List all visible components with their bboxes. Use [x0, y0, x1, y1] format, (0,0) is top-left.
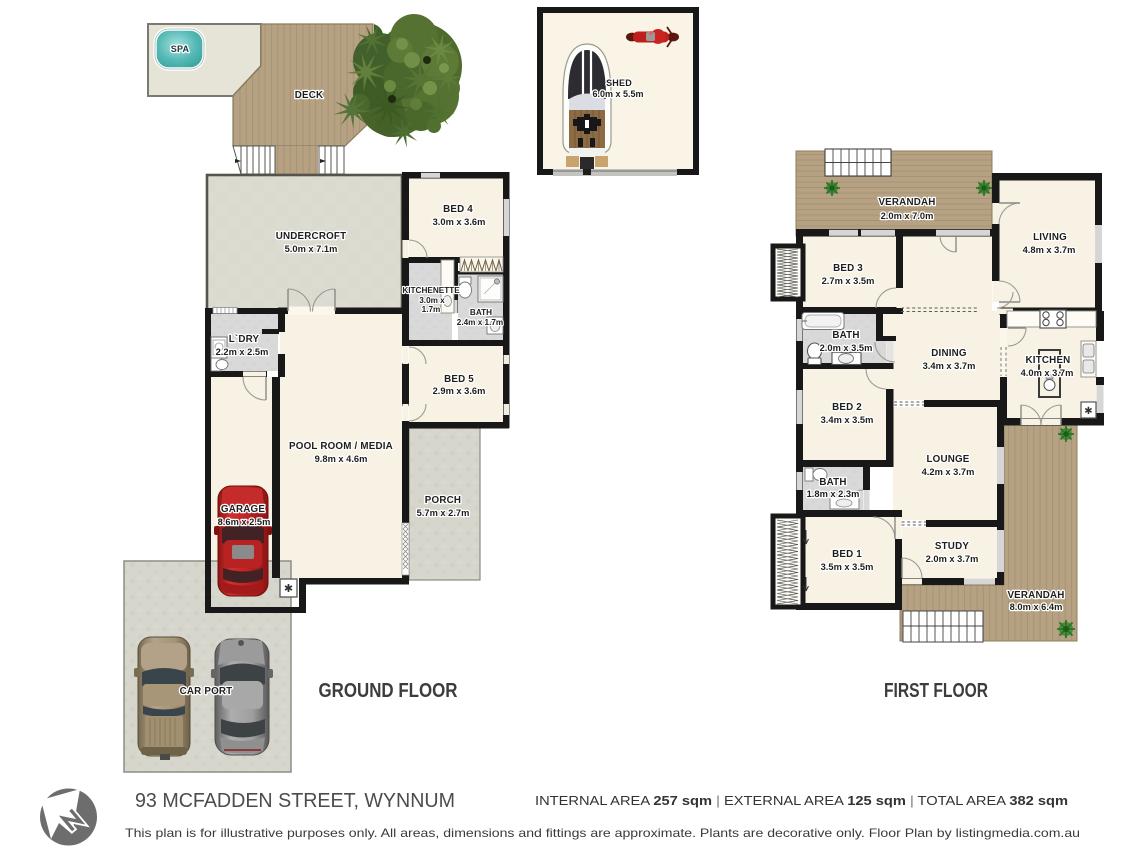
svg-text:1.8m x 2.3m: 1.8m x 2.3m — [807, 489, 860, 499]
svg-text:INTERNAL AREA 257 sqm | EXTE: INTERNAL AREA 257 sqm | EXTERNAL AREA 12… — [535, 794, 1068, 808]
svg-text:4.2m x 3.7m: 4.2m x 3.7m — [922, 467, 975, 477]
svg-text:BED 1: BED 1 — [832, 549, 862, 560]
svg-text:SPA: SPA — [171, 44, 190, 54]
svg-text:93 MCFADDEN STREET, WYNNUM: 93 MCFADDEN STREET, WYNNUM — [135, 790, 455, 812]
svg-text:This plan is for illustrative: This plan is for illustrative purposes o… — [125, 826, 1080, 840]
svg-text:LIVING: LIVING — [1033, 232, 1067, 243]
svg-text:2.0m x 7.0m: 2.0m x 7.0m — [881, 211, 934, 221]
svg-text:VERANDAH: VERANDAH — [878, 197, 935, 208]
svg-text:POOL ROOM / MEDIA: POOL ROOM / MEDIA — [289, 441, 393, 452]
svg-text:✱: ✱ — [284, 583, 293, 595]
svg-text:2.4m x 1.7m: 2.4m x 1.7m — [457, 318, 503, 327]
svg-text:3.4m x 3.5m: 3.4m x 3.5m — [821, 415, 874, 425]
svg-text:2.0m x 3.7m: 2.0m x 3.7m — [926, 554, 979, 564]
svg-text:4.0m x 3.7m: 4.0m x 3.7m — [1021, 368, 1074, 378]
svg-text:2.7m x 3.5m: 2.7m x 3.5m — [822, 276, 875, 286]
svg-text:3.0m x: 3.0m x — [419, 296, 445, 305]
svg-text:DECK: DECK — [295, 90, 324, 101]
svg-text:PORCH: PORCH — [425, 495, 461, 506]
svg-text:BED 3: BED 3 — [833, 263, 863, 274]
svg-text:3.4m x 3.7m: 3.4m x 3.7m — [923, 361, 976, 371]
svg-text:BED 5: BED 5 — [444, 374, 474, 385]
svg-text:2.2m x 2.5m: 2.2m x 2.5m — [216, 347, 269, 357]
svg-text:8.0m x 6.4m: 8.0m x 6.4m — [1010, 602, 1063, 612]
svg-text:SHED: SHED — [606, 78, 632, 88]
svg-text:✱: ✱ — [1084, 406, 1092, 417]
svg-text:L`DRY: L`DRY — [229, 334, 260, 345]
svg-text:STUDY: STUDY — [935, 541, 969, 552]
svg-text:VERANDAH: VERANDAH — [1007, 590, 1064, 601]
svg-text:8.6m x 2.5m: 8.6m x 2.5m — [218, 517, 271, 527]
svg-text:DINING: DINING — [931, 348, 967, 359]
svg-text:GROUND FLOOR: GROUND FLOOR — [319, 680, 458, 702]
svg-text:5.7m x 2.7m: 5.7m x 2.7m — [417, 508, 470, 518]
svg-text:2.9m x 3.6m: 2.9m x 3.6m — [433, 386, 486, 396]
svg-text:FIRST FLOOR: FIRST FLOOR — [884, 680, 988, 702]
svg-text:BED 4: BED 4 — [443, 204, 473, 215]
svg-text:3.5m x 3.5m: 3.5m x 3.5m — [821, 562, 874, 572]
svg-text:3.0m x 3.6m: 3.0m x 3.6m — [433, 217, 486, 227]
svg-text:LOUNGE: LOUNGE — [926, 454, 969, 465]
svg-text:BATH: BATH — [470, 308, 492, 317]
svg-text:KITCHENETTE: KITCHENETTE — [402, 286, 460, 295]
svg-text:6.0m x 5.5m: 6.0m x 5.5m — [592, 89, 643, 99]
svg-text:BED 2: BED 2 — [832, 402, 862, 413]
svg-text:GARAGE: GARAGE — [221, 504, 265, 515]
svg-text:9.8m x 4.6m: 9.8m x 4.6m — [315, 454, 368, 464]
svg-text:5.0m x 7.1m: 5.0m x 7.1m — [285, 244, 338, 254]
svg-text:BATH: BATH — [832, 330, 859, 341]
svg-text:KITCHEN: KITCHEN — [1026, 355, 1071, 366]
svg-text:2.0m x 3.5m: 2.0m x 3.5m — [820, 343, 873, 353]
svg-text:CAR PORT: CAR PORT — [180, 686, 233, 697]
svg-text:BATH: BATH — [819, 477, 846, 488]
svg-text:UNDERCROFT: UNDERCROFT — [276, 231, 347, 242]
svg-text:4.8m x 3.7m: 4.8m x 3.7m — [1023, 245, 1076, 255]
svg-text:1.7m: 1.7m — [422, 305, 441, 314]
